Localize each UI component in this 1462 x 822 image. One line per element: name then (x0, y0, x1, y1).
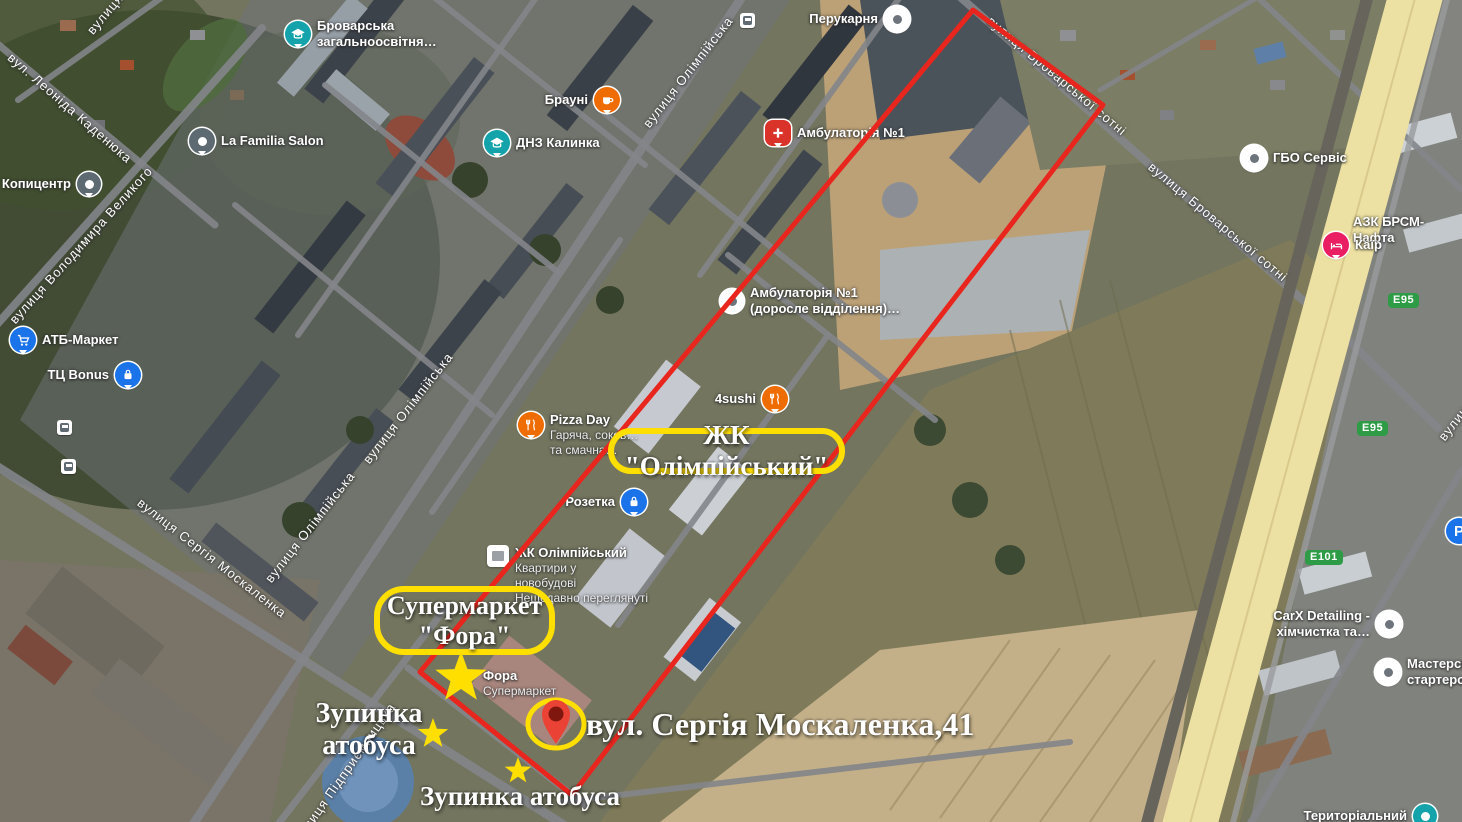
annotation-zhk-olimpiiskyi-box: ЖК "Олімпійський" (608, 428, 845, 474)
annotation-address: вул. Сергія Москаленка,41 (586, 706, 974, 743)
poi-school[interactable]: Броварськазагальноосвітня… (285, 18, 437, 51)
route-shield-e101: E101 (1305, 550, 1343, 565)
hotel-bed-icon (1323, 232, 1349, 258)
bus-stop-icon[interactable] (740, 13, 755, 28)
poi-rozetka[interactable]: Розетка (565, 489, 647, 515)
bus-stop-icon[interactable] (61, 459, 76, 474)
place-dot-icon (884, 6, 910, 32)
poi-la-familia-salon[interactable]: La Familia Salon (189, 128, 324, 154)
poi-label: Броварськазагальноосвітня… (317, 18, 437, 51)
education-icon (484, 130, 510, 156)
shopping-cart-icon (10, 327, 36, 353)
education-icon (285, 21, 311, 47)
place-dot-icon (1376, 611, 1402, 637)
poi-carx-detailing[interactable]: CarX Detailing -хімчистка та… (1273, 608, 1402, 641)
poi-ambulatoria-1[interactable]: Амбулаторія №1 (765, 120, 905, 146)
poi-atb-market[interactable]: АТБ-Маркет (10, 327, 118, 353)
satellite-map-canvas[interactable]: вулиця Олімпійська вулиця Олімпійська ву… (0, 0, 1462, 822)
annotation-bus-stop-west: Зупинка атобуса (314, 698, 424, 762)
annotation-fora-box: Супермаркет "Фора" (374, 586, 555, 655)
poi-fora-supermarket[interactable]: Фора Супермаркет (483, 668, 556, 699)
poi-label: CarX Detailing -хімчистка та… (1273, 608, 1370, 641)
restaurant-icon (518, 412, 544, 438)
poi-kopytsentr[interactable]: Копицентр (2, 172, 101, 196)
government-icon (1413, 804, 1437, 822)
recently-viewed-icon (487, 545, 509, 567)
restaurant-icon (762, 386, 788, 412)
place-dot-icon (77, 172, 101, 196)
poi-gbo-servis[interactable]: ГБО Сервіс (1241, 145, 1347, 171)
poi-dnz-kalynka[interactable]: ДНЗ Калинка (484, 130, 600, 156)
poi-kair-hotel[interactable]: Каїр (1323, 232, 1382, 258)
health-cross-icon (765, 120, 791, 146)
poi-ambulatoria-adult[interactable]: Амбулаторія №1(доросле відділення)… (720, 285, 900, 318)
poi-starter-workshop[interactable]: Мастерскаястартеров (1375, 656, 1462, 689)
place-dot-icon (720, 289, 744, 313)
route-shield-e95-mid: E95 (1357, 421, 1388, 436)
annotation-zhk-label: ЖК "Олімпійський" (614, 420, 839, 482)
poi-tc-bonus[interactable]: ТЦ Bonus (48, 362, 142, 388)
place-dot-icon (1241, 145, 1267, 171)
bus-stop-icon[interactable] (57, 420, 72, 435)
poi-label: Мастерскаястартеров (1407, 656, 1462, 689)
poi-4sushi[interactable]: 4sushi (715, 386, 788, 412)
place-dot-icon (189, 128, 215, 154)
shopping-bag-icon (621, 489, 647, 515)
annotation-fora-line1: Супермаркет (387, 591, 542, 620)
route-shield-e95-top: E95 (1388, 293, 1419, 308)
shopping-bag-icon (115, 362, 141, 388)
coffee-icon (594, 87, 620, 113)
poi-terytorialnyi[interactable]: Територіальний (1304, 804, 1437, 822)
annotation-fora-line2: "Фора" (419, 621, 511, 650)
poi-perukarnia[interactable]: Перукарня (809, 6, 910, 32)
poi-label: Амбулаторія №1(доросле відділення)… (750, 285, 900, 318)
place-dot-icon (1375, 659, 1401, 685)
poi-brauni[interactable]: Брауні (545, 87, 620, 113)
poi-label: Фора Супермаркет (483, 668, 556, 699)
annotation-bus-stop-south: Зупинка атобуса (420, 781, 620, 812)
